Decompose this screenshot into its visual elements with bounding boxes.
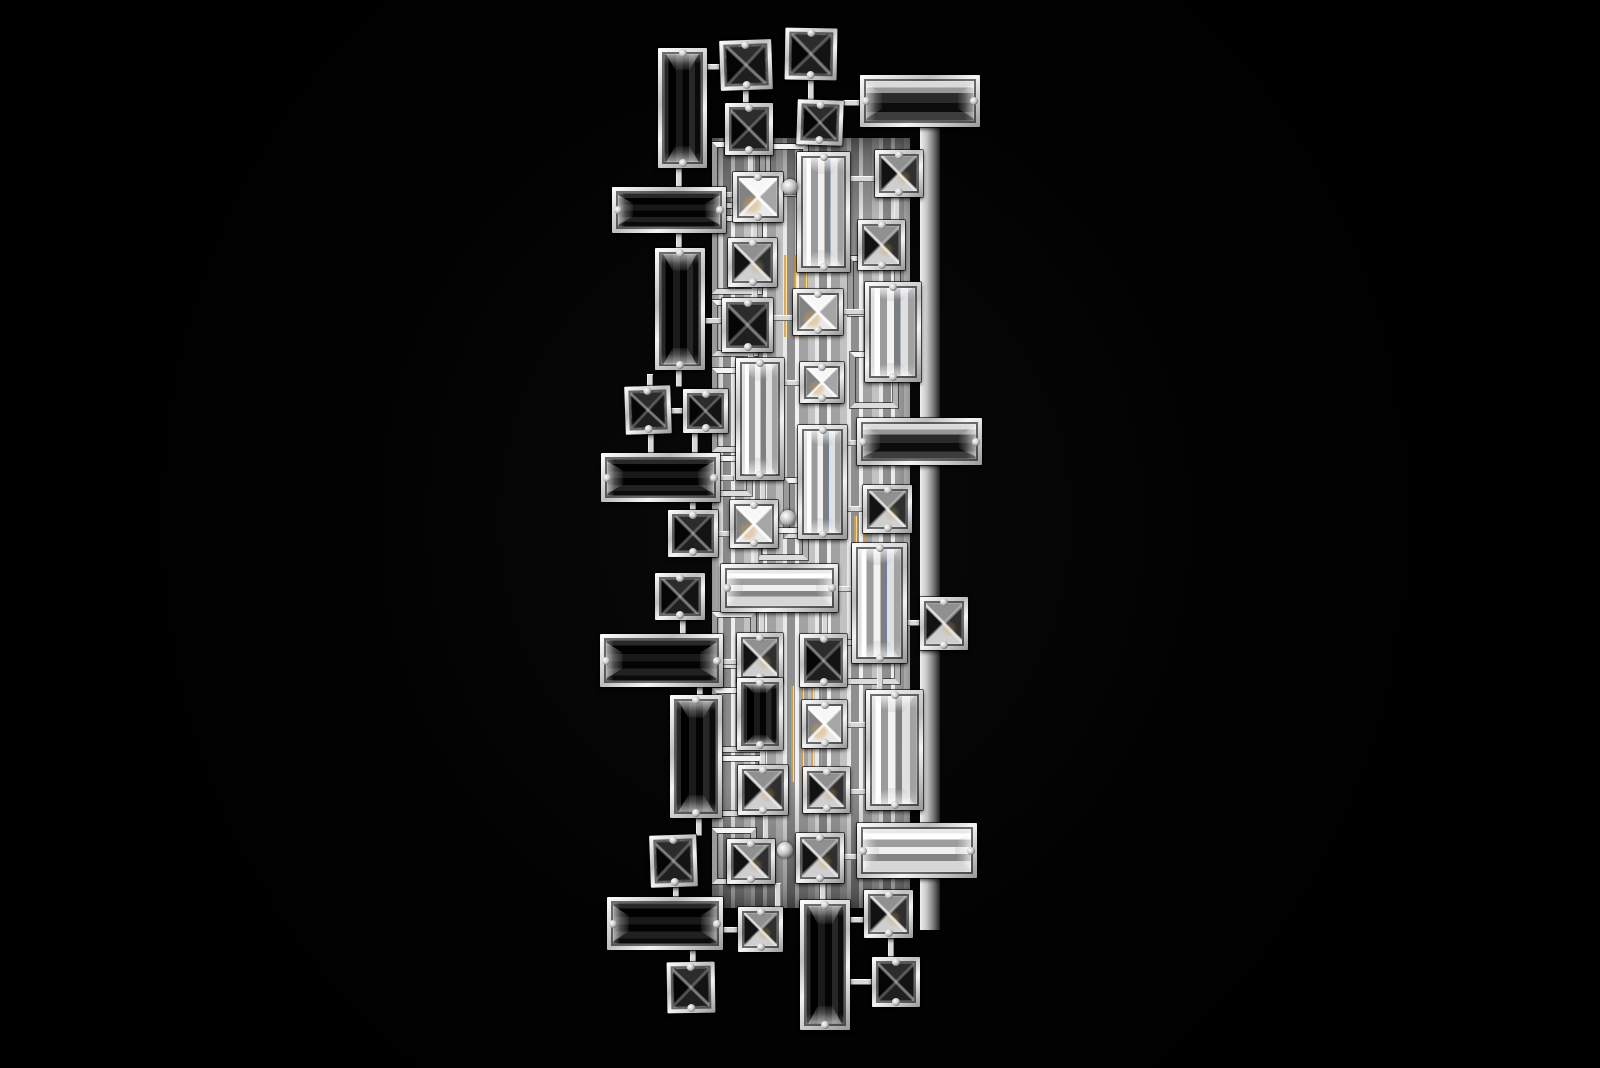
crystal-facet (676, 701, 716, 812)
crystal-facet (744, 771, 782, 809)
crystal-square-clear (793, 289, 843, 335)
connector-rod (696, 818, 702, 836)
crystal-baguette-vertical-clear (797, 152, 850, 272)
crystal-square-black (872, 957, 920, 1007)
connector-rod (773, 315, 793, 321)
connector-rod (850, 917, 865, 923)
crystal-baguette-vertical-clear (798, 425, 847, 539)
connector-rod (820, 883, 826, 901)
crystal-facet (802, 105, 837, 139)
crystal-facet (727, 570, 832, 606)
crystal-facet (864, 226, 899, 264)
connector-rod (723, 927, 739, 933)
connector-rod (705, 64, 720, 70)
connector-rod (670, 408, 684, 414)
backplate-bar (920, 115, 940, 930)
crystal-facet (618, 193, 720, 227)
connector-rod (743, 90, 749, 104)
crystal-facet (863, 424, 976, 459)
crystal-square-smoke (803, 767, 850, 813)
crystal-baguette-horizontal-clear (857, 823, 977, 878)
crystal-baguette-vertical-clear (865, 282, 921, 382)
connector-rod (676, 168, 682, 188)
connector-rod (775, 883, 781, 908)
crystal-square-black (667, 962, 716, 1014)
connector-rod (753, 548, 759, 565)
screw-bolt (780, 510, 796, 526)
crystal-baguette-horizontal-clear (721, 564, 838, 612)
crystal-facet (804, 431, 841, 533)
crystal-square-smoke (738, 907, 783, 952)
connector-rod (676, 233, 682, 249)
crystal-facet (799, 295, 837, 329)
crystal-square-black (785, 28, 838, 81)
connector-rod (877, 663, 883, 691)
crystal-square-black (722, 298, 773, 352)
crystal-baguette-vertical-clear (852, 543, 907, 663)
crystal-facet (739, 178, 777, 216)
crystal-facet (791, 34, 832, 75)
crystal-facet (872, 696, 917, 804)
crystal-facet (661, 254, 699, 364)
connector-rod (822, 612, 828, 635)
crystal-square-smoke (920, 597, 968, 650)
crystal-baguette-horizontal-smoke (860, 75, 980, 127)
crystal-facet (731, 109, 767, 149)
connector-rod (676, 370, 682, 387)
connector-rod (648, 434, 654, 454)
connector-rod (843, 309, 865, 315)
crystal-facet (808, 706, 841, 742)
connector-rod (905, 620, 921, 626)
crystal-facet (803, 158, 844, 266)
crystal-baguette-horizontal-black (600, 634, 723, 687)
crystal-facet (742, 364, 778, 474)
crystal-facet (806, 640, 841, 681)
crystal-square-smoke (858, 220, 905, 270)
crystal-facet (866, 81, 974, 121)
connector-rod (844, 854, 858, 860)
connector-rod (705, 318, 722, 324)
crystal-facet (673, 968, 710, 1008)
connector-rod (763, 814, 769, 840)
connector-rod (680, 620, 686, 635)
crystal-square-smoke (728, 238, 777, 287)
crystal-facet (744, 913, 777, 946)
crystal-facet (871, 288, 915, 376)
crystal-facet (881, 156, 917, 191)
connector-rod (843, 100, 860, 106)
crystal-facet (674, 516, 712, 551)
crystal-facet (806, 906, 844, 1024)
screw-bolt (777, 842, 793, 858)
crystal-baguette-vertical-black (670, 695, 722, 818)
crystal-square-black (668, 510, 718, 557)
product-photo (0, 0, 1600, 1068)
crystal-facet (613, 903, 717, 944)
crystal-facet (802, 839, 838, 877)
connector-rod (759, 612, 765, 634)
connector-rod (850, 979, 873, 985)
crystal-square-clear (733, 172, 783, 222)
crystal-facet (743, 639, 777, 676)
crystal-facet (733, 845, 769, 878)
crystal-square-smoke (737, 633, 783, 682)
crystal-facet (863, 829, 971, 872)
crystal-facet (869, 491, 906, 527)
crystal-baguette-horizontal-black (601, 453, 720, 502)
crystal-square-black (719, 39, 773, 91)
crystal-facet (736, 506, 772, 542)
connector-rod (888, 938, 894, 958)
connector-rod (808, 80, 814, 101)
crystal-wall-sconce (0, 0, 1600, 1068)
crystal-square-black (624, 385, 672, 435)
connector-rod (723, 659, 737, 665)
connector-rod (850, 176, 875, 182)
connector-rod (836, 586, 853, 592)
crystal-facet (606, 640, 717, 681)
crystal-baguette-vertical-clear (866, 690, 923, 810)
connector-rod (716, 531, 731, 537)
crystal-facet (725, 45, 766, 84)
crystal-facet (655, 840, 691, 881)
crystal-square-smoke (727, 839, 775, 884)
crystal-square-clear (730, 500, 778, 548)
crystal-facet (858, 549, 901, 657)
crystal-square-smoke (863, 485, 912, 533)
crystal-baguette-vertical-black (658, 48, 707, 168)
crystal-facet (664, 54, 701, 162)
screw-bolt (782, 179, 798, 195)
crystal-baguette-vertical-black (800, 900, 850, 1030)
crystal-facet (809, 773, 844, 807)
crystal-square-black (649, 834, 698, 888)
crystal-square-clear (800, 362, 844, 403)
crystal-baguette-horizontal-black (607, 897, 723, 950)
crystal-square-smoke (796, 833, 844, 883)
crystal-facet (743, 684, 777, 744)
connector-rod (692, 433, 698, 454)
crystal-square-black (800, 634, 847, 687)
connector-rod (847, 506, 864, 512)
crystal-facet (661, 579, 699, 614)
crystal-square-smoke (864, 890, 913, 938)
connector-rod (894, 197, 900, 221)
crystal-square-smoke (875, 150, 923, 197)
connector-rod (748, 155, 754, 173)
crystal-square-black (725, 103, 773, 155)
connector-rod (784, 380, 801, 386)
crystal-facet (607, 459, 714, 496)
crystal-facet (870, 896, 907, 932)
crystal-facet (878, 963, 914, 1001)
connector-rod (847, 722, 867, 728)
crystal-baguette-vertical-black (737, 678, 783, 750)
connector-rod (760, 480, 766, 501)
crystal-square-black (796, 99, 844, 146)
crystal-facet (806, 368, 838, 397)
crystal-baguette-horizontal-black (612, 187, 726, 233)
crystal-square-black (655, 573, 705, 620)
crystal-facet (734, 244, 771, 281)
crystal-baguette-horizontal-smoke (857, 418, 982, 465)
connector-rod (690, 949, 696, 963)
crystal-square-black (683, 389, 728, 433)
crystal-square-clear (802, 700, 847, 748)
crystal-square-smoke (738, 765, 788, 815)
crystal-facet (728, 304, 767, 346)
crystal-facet (926, 603, 962, 644)
crystal-facet (630, 391, 665, 428)
crystal-baguette-vertical-clear (736, 358, 784, 480)
connector-rod (720, 475, 734, 481)
crystal-baguette-vertical-black (655, 248, 705, 370)
crystal-facet (689, 395, 722, 427)
connector-rod (850, 789, 867, 795)
